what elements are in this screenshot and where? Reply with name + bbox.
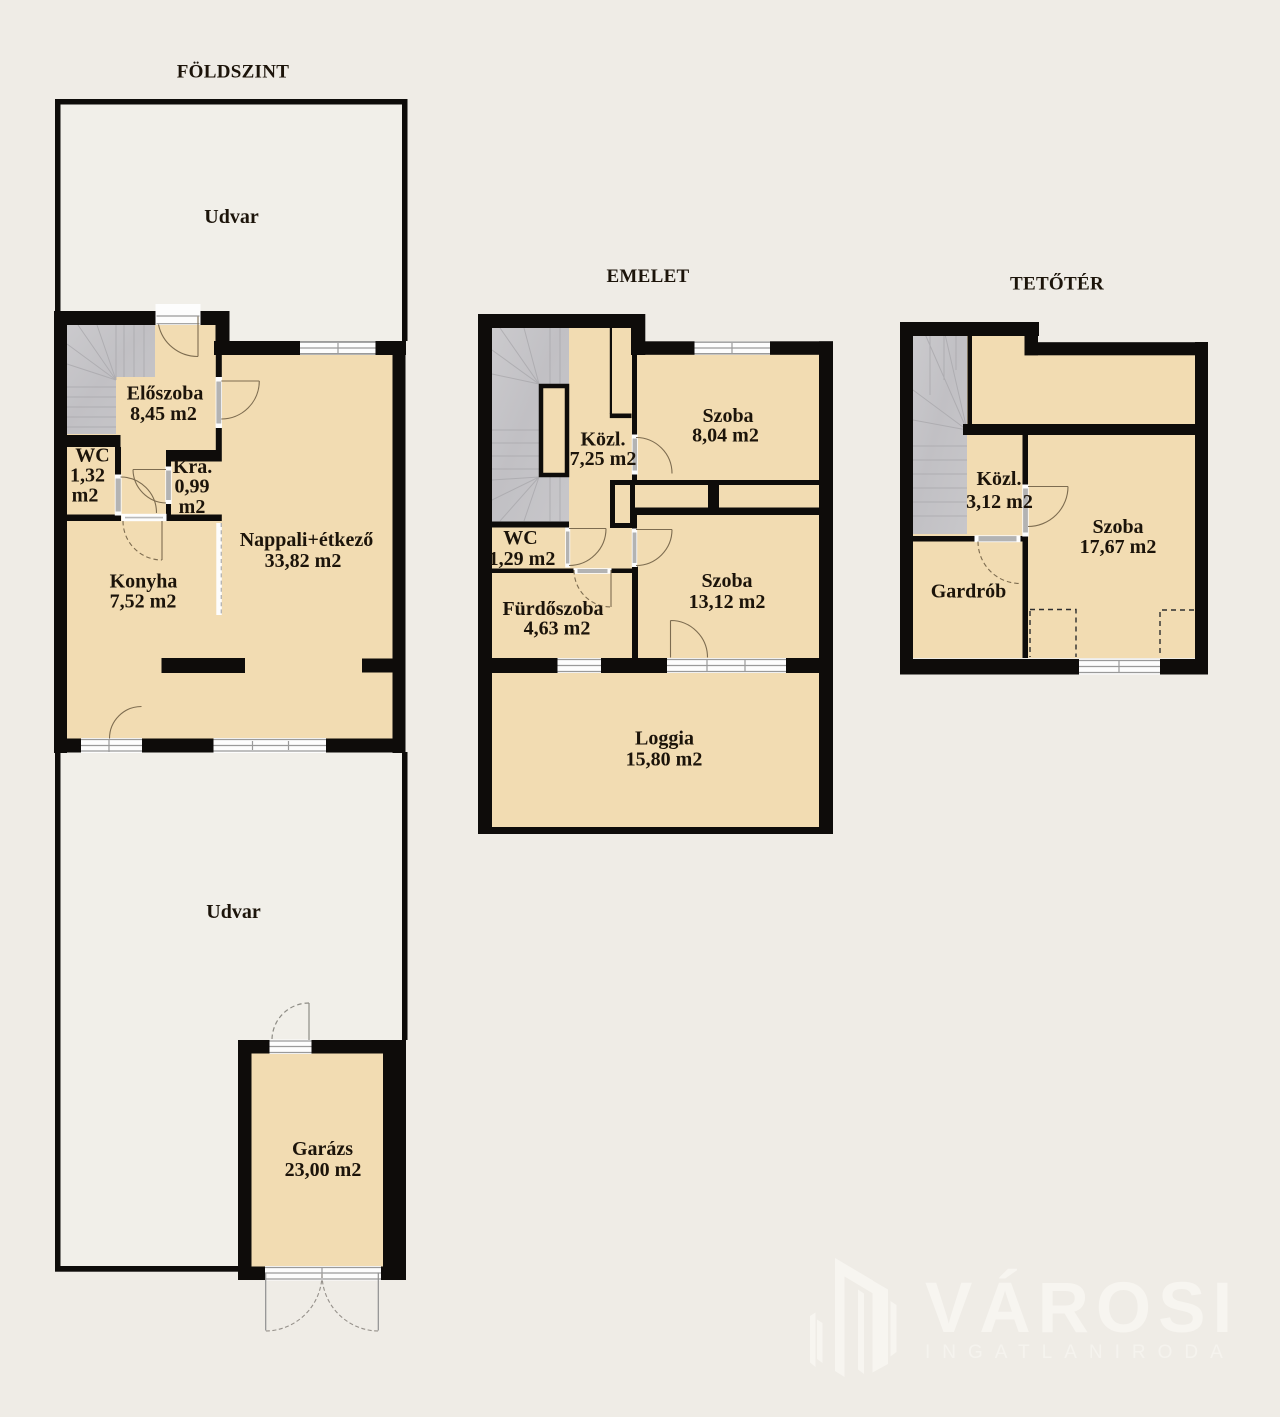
svg-text:Gardrób: Gardrób — [931, 581, 1007, 603]
svg-text:17,67 m2: 17,67 m2 — [1080, 536, 1157, 558]
svg-text:0,99: 0,99 — [175, 476, 210, 498]
svg-text:33,82 m2: 33,82 m2 — [265, 550, 342, 572]
svg-text:Udvar: Udvar — [204, 206, 259, 228]
svg-text:15,80 m2: 15,80 m2 — [626, 749, 703, 771]
svg-text:VÁROSI: VÁROSI — [925, 1269, 1239, 1348]
svg-text:FÖLDSZINT: FÖLDSZINT — [177, 62, 290, 83]
svg-text:8,04 m2: 8,04 m2 — [692, 425, 759, 447]
svg-text:Közl.: Közl. — [977, 468, 1022, 490]
svg-text:WC: WC — [503, 527, 537, 549]
svg-text:Előszoba: Előszoba — [127, 383, 204, 405]
svg-text:m2: m2 — [179, 496, 206, 518]
svg-text:INGATLANIRODA: INGATLANIRODA — [925, 1342, 1235, 1363]
svg-text:8,45 m2: 8,45 m2 — [130, 403, 197, 425]
svg-text:Garázs: Garázs — [292, 1138, 353, 1160]
svg-text:EMELET: EMELET — [606, 266, 689, 287]
svg-text:Nappali+étkező: Nappali+étkező — [240, 529, 374, 551]
svg-text:1,32: 1,32 — [70, 465, 105, 487]
svg-text:Loggia: Loggia — [635, 728, 694, 750]
svg-text:7,25 m2: 7,25 m2 — [570, 448, 637, 470]
svg-text:Szoba: Szoba — [1092, 516, 1143, 538]
svg-text:TETŐTÉR: TETŐTÉR — [1010, 273, 1104, 295]
svg-text:m2: m2 — [72, 485, 99, 507]
svg-text:7,52 m2: 7,52 m2 — [110, 591, 177, 613]
svg-text:13,12 m2: 13,12 m2 — [689, 591, 766, 613]
svg-text:Konyha: Konyha — [110, 571, 178, 593]
svg-text:Szoba: Szoba — [701, 570, 752, 592]
svg-text:1,29 m2: 1,29 m2 — [489, 548, 556, 570]
svg-text:WC: WC — [75, 445, 109, 467]
svg-text:23,00 m2: 23,00 m2 — [285, 1159, 362, 1181]
svg-text:4,63 m2: 4,63 m2 — [524, 618, 591, 640]
svg-text:Udvar: Udvar — [206, 901, 261, 923]
svg-text:3,12 m2: 3,12 m2 — [966, 491, 1033, 513]
